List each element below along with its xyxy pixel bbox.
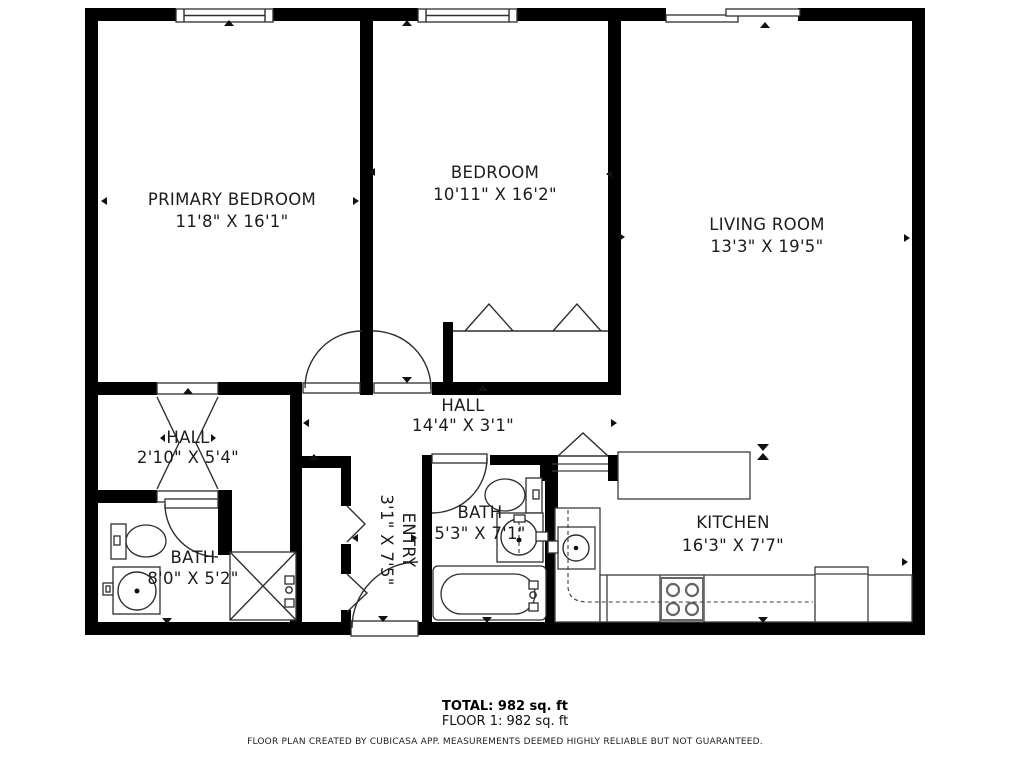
floor-plan-svg: PRIMARY BEDROOM 11'8" X 16'1" BEDROOM 10… (0, 0, 1014, 758)
kitchen-island (618, 452, 750, 499)
living-room-label: LIVING ROOM (709, 215, 825, 234)
bedroom-door (373, 331, 431, 393)
kitchen-dims: 16'3" X 7'7" (682, 536, 784, 555)
disclaimer-text: FLOOR PLAN CREATED BY CUBICASA APP. MEAS… (247, 737, 763, 747)
kitchen-label: KITCHEN (696, 513, 770, 532)
bath-small-label: BATH (457, 503, 502, 522)
floor-plan-page: PRIMARY BEDROOM 11'8" X 16'1" BEDROOM 10… (0, 0, 1014, 758)
windows (176, 9, 800, 22)
floor-area-text: FLOOR 1: 982 sq. ft (442, 714, 568, 729)
hall-label: HALL (441, 396, 485, 415)
hall-small-label: HALL (166, 428, 210, 447)
bedroom-dims: 10'11" X 16'2" (433, 185, 557, 204)
total-area-text: TOTAL: 982 sq. ft (442, 699, 568, 714)
footer: TOTAL: 982 sq. ft FLOOR 1: 982 sq. ft FL… (247, 699, 763, 747)
room-labels: PRIMARY BEDROOM 11'8" X 16'1" BEDROOM 10… (137, 163, 825, 588)
window-primary-bedroom (176, 9, 273, 22)
bath-small-fixtures (433, 478, 548, 620)
stove-icon (661, 578, 703, 620)
refrigerator-icon (815, 567, 868, 622)
bedroom-label: BEDROOM (451, 163, 539, 182)
entry-dims: 3'1" X 7'5" (377, 494, 396, 585)
bath-left-dims: 8'0" X 5'2" (147, 569, 238, 588)
window-bedroom (418, 9, 517, 22)
hall-small-dims: 2'10" X 5'4" (137, 448, 239, 467)
toilet-icon-left (111, 524, 166, 559)
primary-bedroom-label: PRIMARY BEDROOM (148, 190, 316, 209)
primary-bedroom-dims: 11'8" X 16'1" (176, 212, 289, 231)
shower-icon (230, 552, 296, 620)
bath-left-label: BATH (170, 548, 215, 567)
primary-bedroom-door (303, 331, 362, 393)
hall-dims: 14'4" X 3'1" (412, 416, 514, 435)
living-room-dims: 13'3" X 19'5" (711, 237, 824, 256)
entry-label: ENTRY (399, 513, 418, 568)
sliding-door-living-room (666, 9, 800, 22)
bedroom-closet-doors (453, 304, 608, 331)
kitchen-closet-door (552, 433, 608, 471)
bathtub-icon (433, 566, 546, 620)
entry-label-group: ENTRY 3'1" X 7'5" (377, 494, 418, 585)
bath-small-dims: 5'3" X 7'1" (434, 524, 525, 543)
